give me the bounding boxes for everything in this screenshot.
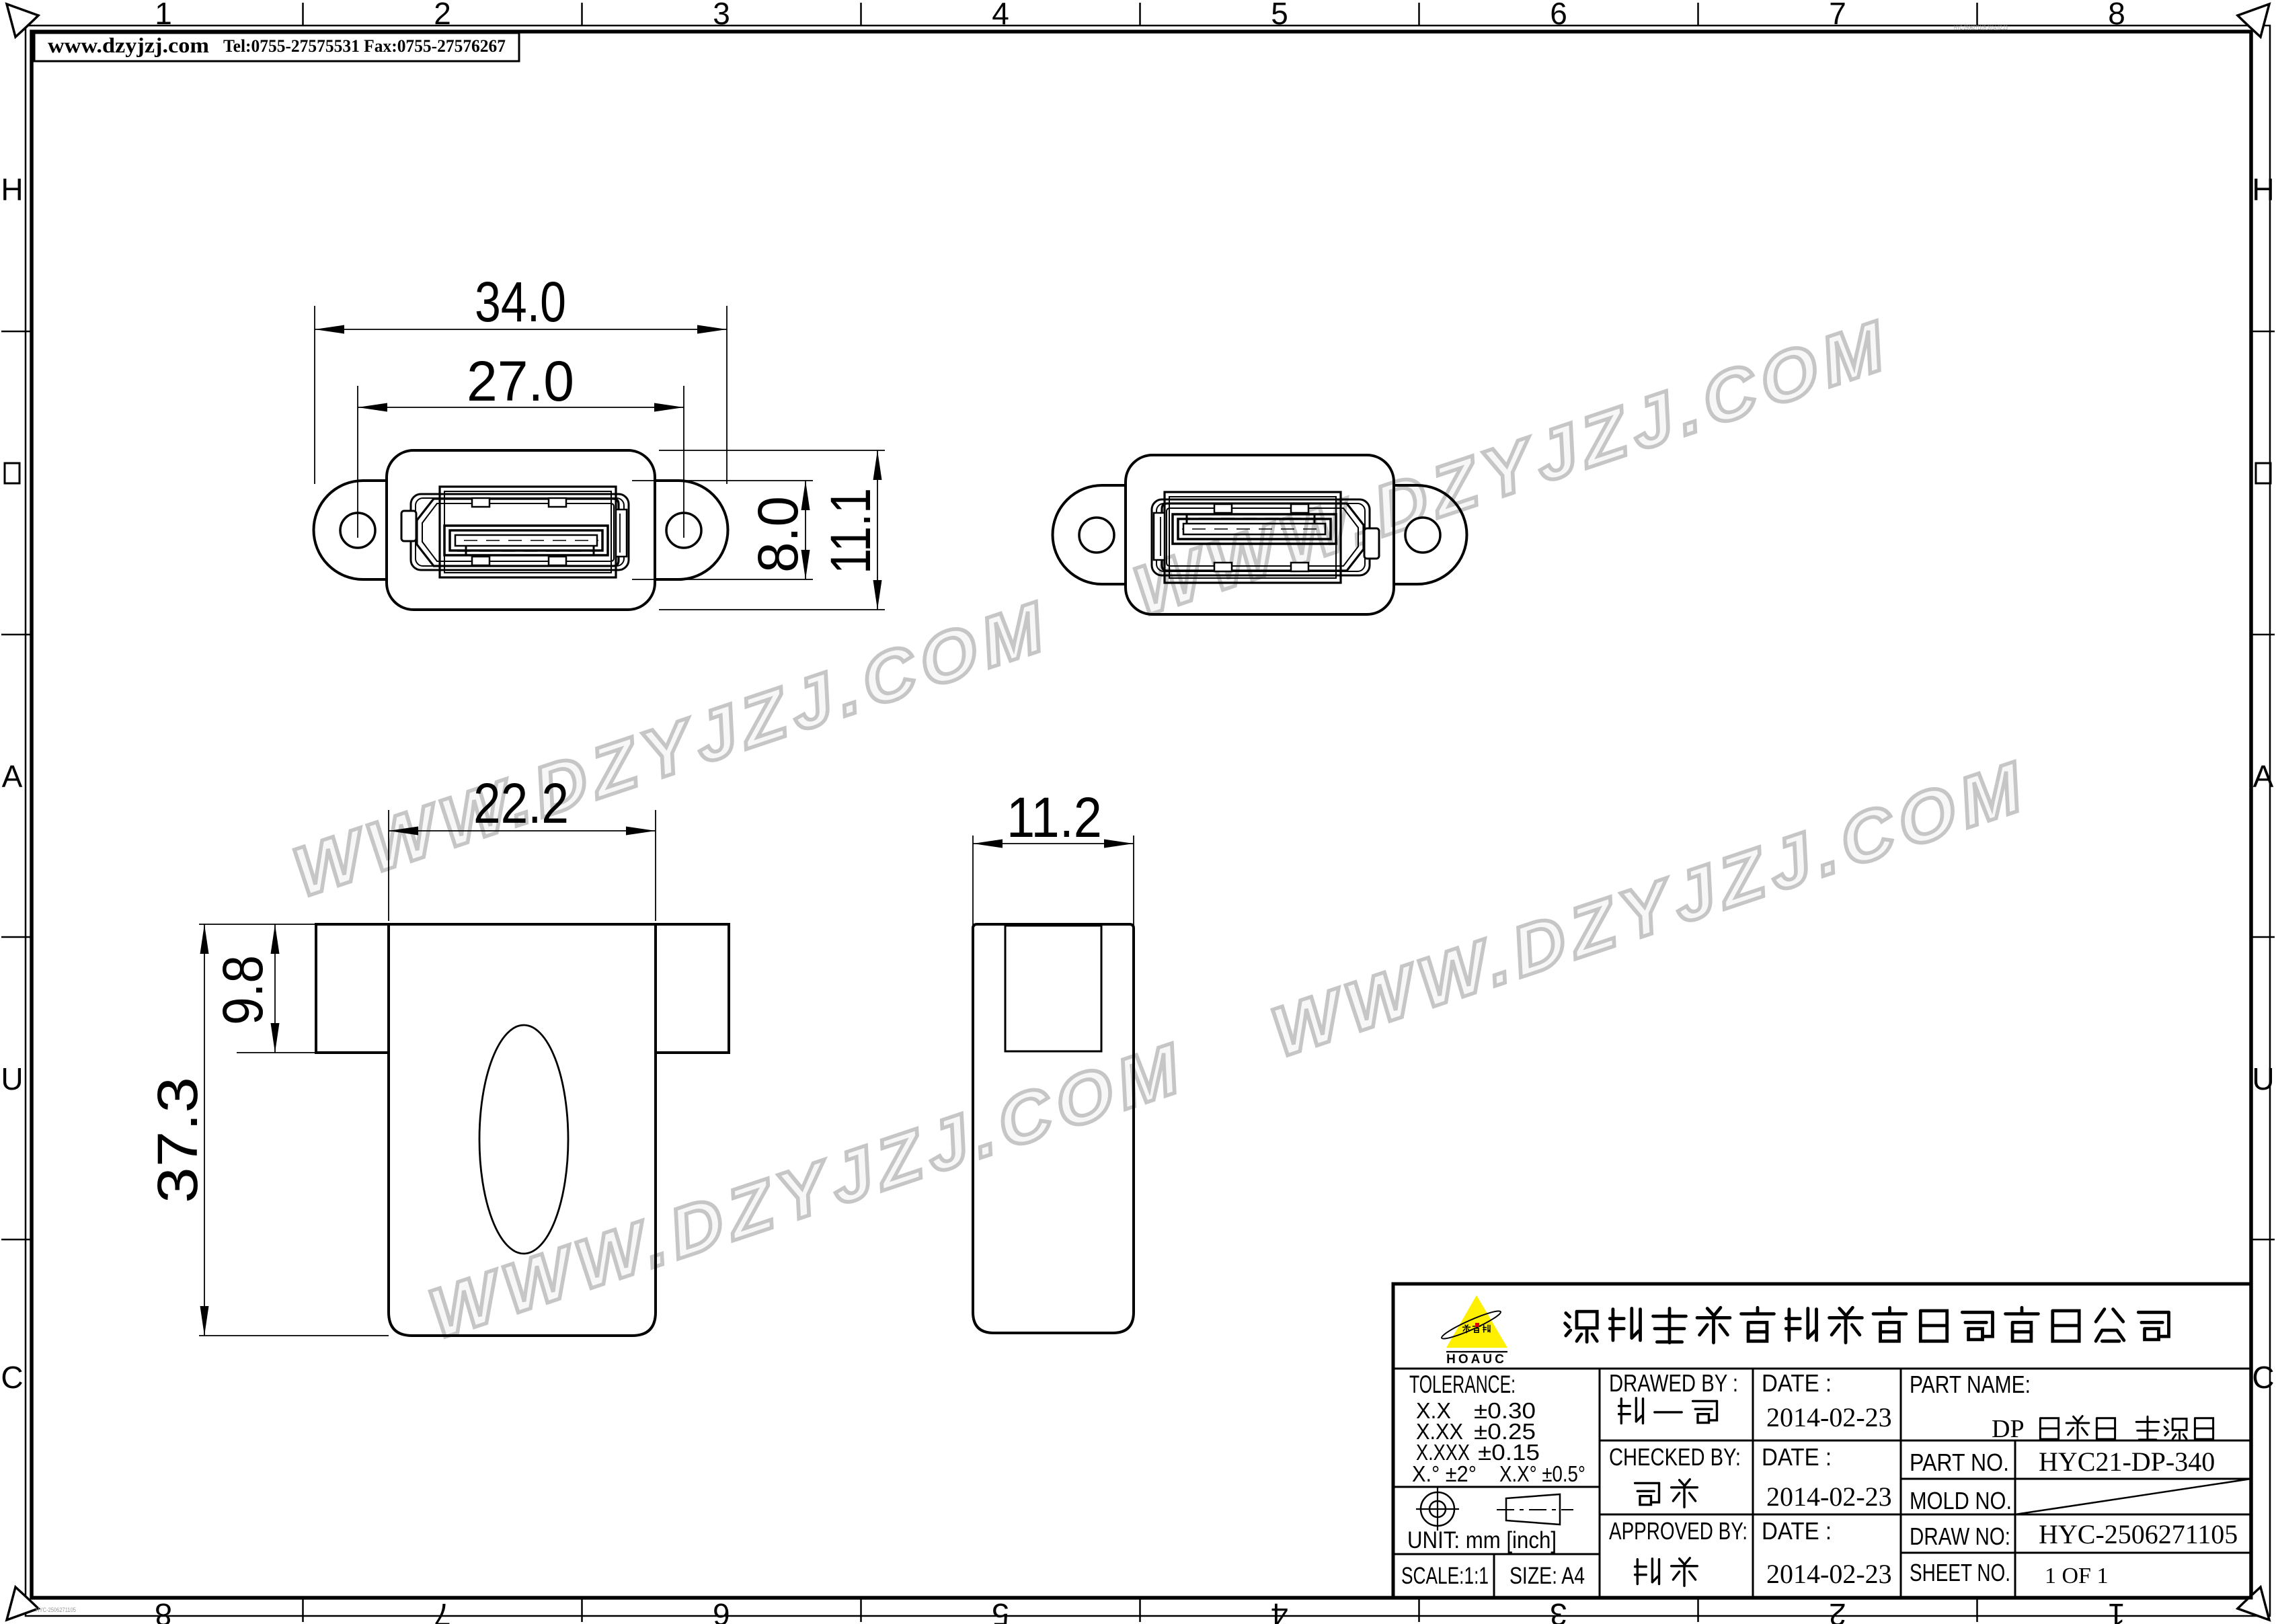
svg-text:HYC21-DP-340: HYC21-DP-340 [2039,1447,2215,1477]
svg-text:11.1: 11.1 [819,488,882,574]
svg-text:DATE :: DATE : [1762,1517,1832,1545]
svg-text:34.0: 34.0 [475,270,566,333]
svg-text:11.2: 11.2 [1007,786,1102,849]
svg-text:DRAW NO:: DRAW NO: [1910,1522,2010,1550]
svg-text:DATE :: DATE : [1762,1443,1832,1471]
svg-text:DRAWED BY :: DRAWED BY : [1609,1369,1738,1397]
svg-text:4: 4 [1271,1597,1288,1624]
svg-text:Tel:0755-27575531 Fax:0755-27: Tel:0755-27575531 Fax:0755-27576267 [223,36,506,56]
svg-text:PART NAME:: PART NAME: [1910,1371,2031,1398]
svg-text:1: 1 [155,0,172,31]
svg-text:3: 3 [1550,1597,1567,1624]
svg-text:SHEET NO.: SHEET NO. [1910,1559,2010,1586]
svg-text:5: 5 [1271,0,1288,31]
svg-text:8: 8 [2108,0,2125,31]
svg-text:6: 6 [713,1597,730,1624]
svg-text:9.8: 9.8 [211,955,274,1025]
svg-text:SCALE:1:1: SCALE:1:1 [1401,1563,1489,1589]
svg-text:2014-02-23: 2014-02-23 [1766,1559,1892,1589]
svg-text:C: C [2252,1360,2274,1395]
svg-text:8.0: 8.0 [746,496,810,573]
svg-text:A: A [2253,759,2274,794]
svg-text:U: U [1,1061,23,1096]
svg-text:U: U [2252,1061,2274,1096]
svg-text:UNIT: mm [inch]: UNIT: mm [inch] [1407,1527,1557,1553]
svg-text:HOAUC: HOAUC [1446,1352,1507,1367]
svg-text:HYC-2506271105: HYC-2506271105 [36,1607,76,1613]
svg-text:H: H [2252,172,2274,207]
svg-text:1 OF 1: 1 OF 1 [2045,1564,2108,1588]
svg-text:37.3: 37.3 [146,1077,209,1203]
svg-text:7: 7 [1829,0,1846,31]
svg-text:4: 4 [992,0,1009,31]
svg-text:22.2: 22.2 [473,772,569,835]
svg-text:HYC-2506271105 2014.02.23: HYC-2506271105 2014.02.23 [1954,24,2008,31]
svg-text:2014-02-23: 2014-02-23 [1766,1402,1892,1432]
svg-text:A: A [2,759,23,794]
svg-text:www.dzyjzj.com: www.dzyjzj.com [48,33,209,57]
svg-text:C: C [1,1360,23,1395]
svg-text:HYC-2506271105: HYC-2506271105 [2039,1519,2238,1549]
svg-text:2014-02-23: 2014-02-23 [1766,1481,1892,1512]
svg-text:DP: DP [1992,1415,2025,1443]
svg-text:7: 7 [434,1597,451,1624]
svg-text:APPROVED BY:: APPROVED BY: [1609,1517,1748,1545]
svg-text:2: 2 [1829,1597,1846,1624]
svg-text:2: 2 [434,0,451,31]
svg-text:5: 5 [992,1597,1009,1624]
svg-text:CHECKED BY:: CHECKED BY: [1609,1443,1741,1471]
svg-text:X.° ±2°: X.° ±2° [1412,1461,1477,1486]
svg-text:6: 6 [1550,0,1567,31]
svg-text:27.0: 27.0 [467,350,574,413]
svg-text:MOLD NO.: MOLD NO. [1910,1487,2012,1514]
svg-text:1: 1 [2108,1597,2125,1624]
svg-text:DATE :: DATE : [1762,1369,1832,1397]
svg-text:X.X° ±0.5°: X.X° ±0.5° [1499,1461,1585,1486]
svg-text:8: 8 [155,1597,172,1624]
svg-text:PART NO.: PART NO. [1910,1449,2009,1476]
svg-text:TOLERANCE:: TOLERANCE: [1409,1371,1516,1398]
svg-text:SIZE: A4: SIZE: A4 [1509,1563,1585,1589]
svg-text:3: 3 [713,0,730,31]
svg-text:H: H [1,172,23,207]
